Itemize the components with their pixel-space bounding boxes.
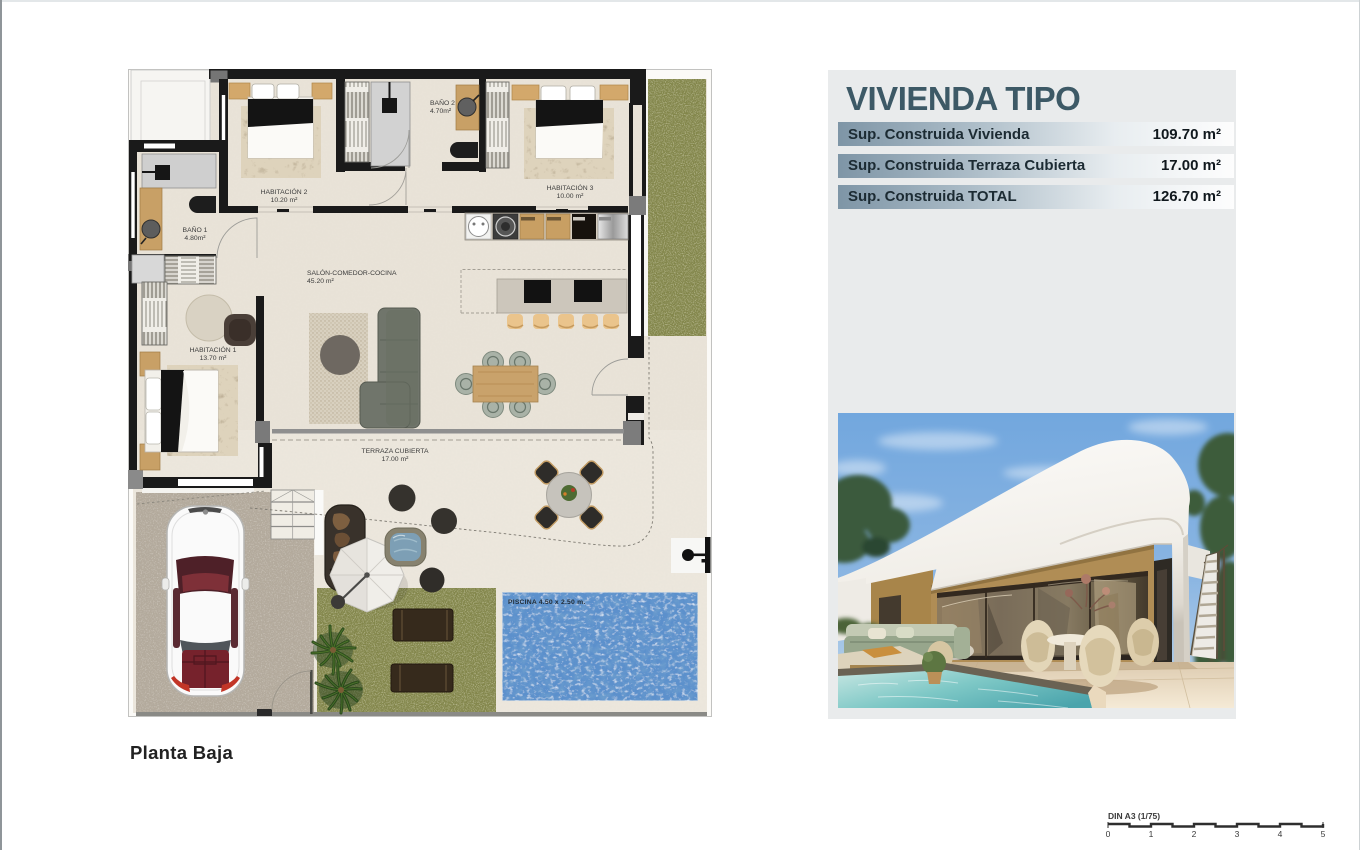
svg-text:17.00 m²: 17.00 m² — [382, 456, 410, 463]
svg-text:SALÓN-COMEDOR-COCINA: SALÓN-COMEDOR-COCINA — [307, 268, 397, 277]
svg-text:HABITACIÓN 3: HABITACIÓN 3 — [547, 183, 594, 192]
svg-text:Planta Baja: Planta Baja — [130, 742, 233, 763]
svg-text:4.70m²: 4.70m² — [430, 108, 452, 115]
svg-text:2: 2 — [1192, 829, 1197, 839]
svg-text:45.20 m²: 45.20 m² — [307, 278, 335, 285]
svg-text:HABITACIÓN 1: HABITACIÓN 1 — [190, 345, 237, 354]
svg-text:DIN A3 (1/75): DIN A3 (1/75) — [1108, 811, 1160, 821]
svg-text:1: 1 — [1149, 829, 1154, 839]
svg-text:0: 0 — [1106, 829, 1111, 839]
svg-text:PISCINA 4.50 x 2.50 m.: PISCINA 4.50 x 2.50 m. — [508, 599, 585, 606]
svg-text:10.00 m²: 10.00 m² — [557, 193, 585, 200]
svg-text:4: 4 — [1278, 829, 1283, 839]
svg-text:13.70 m²: 13.70 m² — [200, 355, 228, 362]
svg-text:3: 3 — [1235, 829, 1240, 839]
svg-text:BAÑO 2: BAÑO 2 — [430, 98, 455, 107]
svg-text:4.80m²: 4.80m² — [184, 235, 206, 242]
svg-text:HABITACIÓN 2: HABITACIÓN 2 — [261, 187, 308, 196]
svg-text:5: 5 — [1321, 829, 1326, 839]
svg-text:BAÑO 1: BAÑO 1 — [183, 225, 208, 234]
svg-text:TERRAZA CUBIERTA: TERRAZA CUBIERTA — [362, 448, 429, 455]
svg-text:10.20 m²: 10.20 m² — [271, 197, 299, 204]
